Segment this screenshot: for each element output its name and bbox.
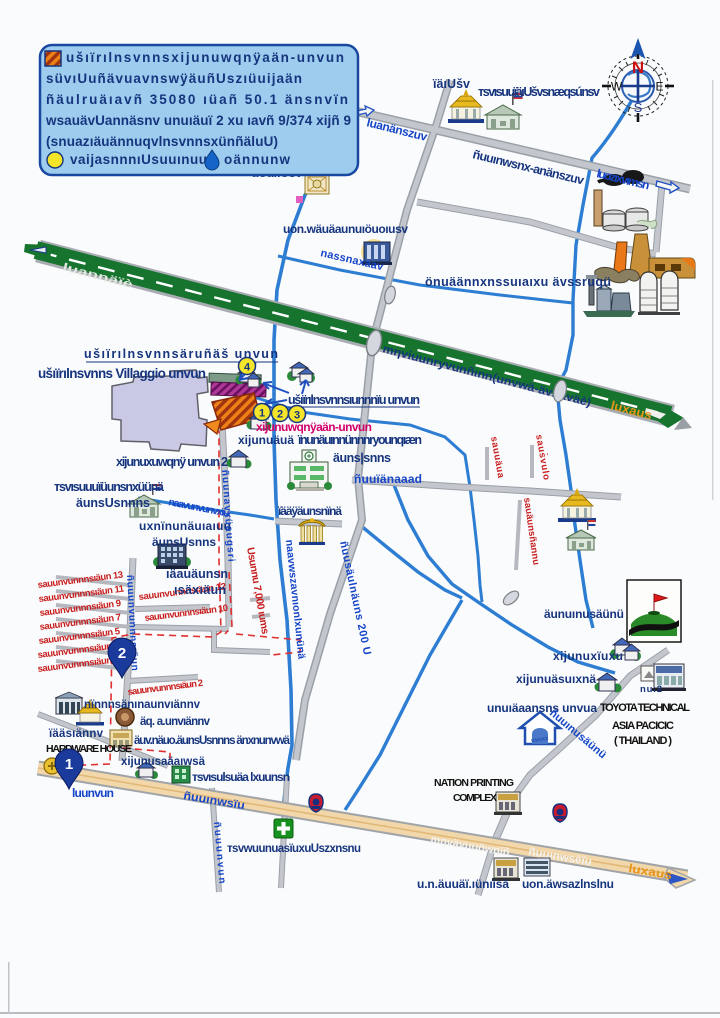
svg-text:1: 1 xyxy=(65,756,73,773)
svg-text:ñuuïänaaad: ñuuïänaaad xyxy=(354,472,422,486)
svg-text:nïnnnsänınaunvıännv: nïnnnsänınaunvıännv xyxy=(84,699,201,711)
svg-text:äq. a.unvıännv: äq. a.unvıännv xyxy=(140,716,211,728)
svg-text:önuäännxnssuıaıxu ävssruqü: önuäännxnssuıaıxu ävssruqü xyxy=(425,275,611,289)
svg-text:ušıïrılnsvnnsxijunuwqnÿaän-unv: ušıïrılnsvnnsxijunuwqnÿaän-unvun xyxy=(66,50,344,65)
svg-text:ısäxıäun: ısäxıäun xyxy=(174,583,226,597)
svg-text:xijunuäsuıxnä: xijunuäsuıxnä xyxy=(516,672,596,686)
svg-text:тsvısuuïäιUšvsnæqsúnsv: тsvısuuïäιUšvsnæqsúnsv xyxy=(478,85,600,99)
svg-text:тsvwuunuasïuxuUszxnsnu: тsvwuunuasïuxuUszxnsnu xyxy=(227,843,361,855)
svg-text:ïääÿäunsnïnä: ïääÿäunsnïnä xyxy=(277,504,342,518)
svg-text:тsvısulsuäa lxuunsn: тsvısulsuäa lxuunsn xyxy=(192,770,290,784)
svg-text:ıäauäunsn: ıäauäunsn xyxy=(166,567,228,581)
svg-text:nu.2: nu.2 xyxy=(640,684,662,695)
svg-text:4: 4 xyxy=(244,362,251,374)
svg-text:ïääsıännv: ïääsıännv xyxy=(48,728,104,740)
svg-text:N: N xyxy=(632,58,644,77)
svg-text:TOYOTA TECHNICAL: TOYOTA TECHNICAL xyxy=(600,702,690,714)
svg-text:3: 3 xyxy=(294,410,300,422)
svg-text:ušıïrılnsvnnsıunnnïu unvun: ušıïrılnsvnnsıunnnïu unvun xyxy=(288,393,420,407)
svg-text:тsvısuuuïüunsnxüünä: тsvısuuuïüunsnxüünä xyxy=(54,480,164,494)
svg-text:xijunuäuä: xijunuäuä xyxy=(238,433,294,447)
svg-text:xijunuwqnÿaän-unvun: xijunuwqnÿaän-unvun xyxy=(256,420,372,434)
svg-text:NATION PRINTING: NATION PRINTING xyxy=(434,777,514,789)
svg-text:S: S xyxy=(634,100,643,115)
svg-text:ïnunäuınnünnnryounqıæn: ïnunäuınnünnnryounqıæn xyxy=(297,433,422,447)
svg-text:E: E xyxy=(655,80,663,94)
svg-text:uon.wäuäaunuıöuoıusv: uon.wäuäaunuıöuoıusv xyxy=(283,222,408,236)
svg-text:xijunuxïuxu: xijunuxïuxu xyxy=(553,649,623,663)
svg-text:u.n.äuuäï.ıünıïsä: u.n.äuuäï.ıünıïsä xyxy=(417,877,509,891)
svg-text:xijunusaäaıwsä: xijunusaäaıwsä xyxy=(121,756,206,768)
svg-text:äunsUsnnns: äunsUsnnns xyxy=(76,496,150,510)
svg-text:xijunuxuwqnÿ unvun 2: xijunuxuwqnÿ unvun 2 xyxy=(116,455,228,469)
svg-text:1: 1 xyxy=(259,408,265,420)
svg-text:W: W xyxy=(611,80,623,94)
svg-text:äuns|snns: äuns|snns xyxy=(333,451,391,465)
svg-text:wsauävUannäsnv unuıäuï 2 xu ıa: wsauävUannäsnv unuıäuï 2 xu ıavñ 9/374 x… xyxy=(45,113,351,128)
svg-text:süvıUuñävuavnswÿäuñUszıüuijaän: süvıUuñävuavnswÿäuñUszıüuijaän xyxy=(46,71,302,86)
svg-text:vaijasnnnıUsuuınuu: vaijasnnnıUsuuınuu xyxy=(70,152,207,167)
svg-text:äunsUsnns: äunsUsnns xyxy=(152,535,216,549)
svg-text:uon.äwsazlnslnu: uon.äwsazlnslnu xyxy=(522,877,614,891)
svg-text:(snuazıäuännuqvlnsvnnsxünñäluU: (snuazıäuännuqvlnsvnnsxünñäluU) xyxy=(46,134,278,149)
svg-text:uxnïnunäuıaıuu: uxnïnunäuıaıuu xyxy=(139,519,231,533)
svg-text:äunuınusäünü: äunuınusäünü xyxy=(544,607,624,621)
svg-text:COMPLEX: COMPLEX xyxy=(453,792,497,804)
svg-text:luunvun: luunvun xyxy=(72,786,114,800)
svg-text:2: 2 xyxy=(277,409,283,421)
svg-text:ušıïrılnsvnns Villaggio unvun: ušıïrılnsvnns Villaggio unvun xyxy=(38,366,206,381)
svg-text:ïäιUšv: ïäιUšv xyxy=(432,77,470,91)
svg-text:oännunw: oännunw xyxy=(224,152,290,167)
svg-text:( THAILAND ): ( THAILAND ) xyxy=(614,735,672,747)
svg-text:äuv.näuo.äunsUsnnns änxnunvwä: äuv.näuo.äunsUsnnns änxnunvwä xyxy=(134,735,291,747)
svg-text:unuıäaansns unvua: unuıäaansns unvua xyxy=(487,701,597,715)
svg-text:ASIA PACICIC: ASIA PACICIC xyxy=(612,720,674,732)
svg-text:2: 2 xyxy=(118,645,126,662)
